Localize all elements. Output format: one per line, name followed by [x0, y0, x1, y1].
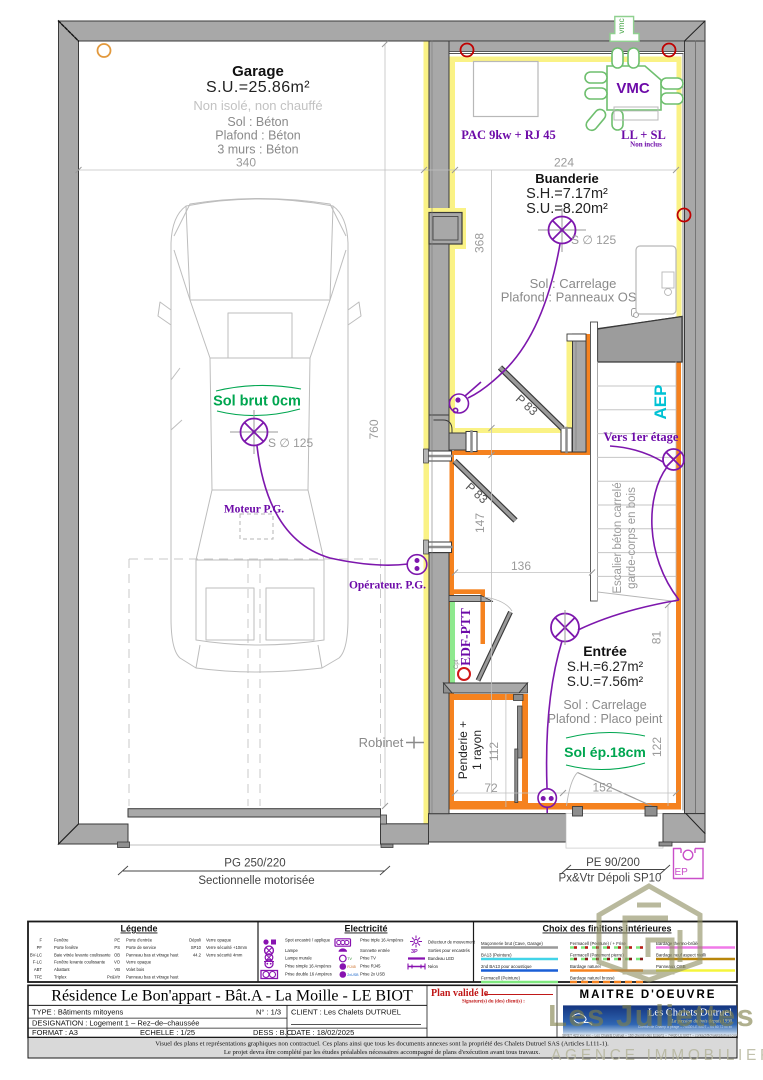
- svg-text:Non inclus: Non inclus: [630, 141, 662, 149]
- svg-text:Sol : Carrelage: Sol : Carrelage: [563, 698, 646, 712]
- svg-text:PE: PE: [114, 938, 120, 943]
- svg-text:FORMAT : A3: FORMAT : A3: [32, 1028, 78, 1037]
- svg-text:Electricité: Electricité: [344, 924, 387, 934]
- svg-text:PE 90/200: PE 90/200: [586, 857, 640, 869]
- svg-text:Entrée: Entrée: [583, 643, 627, 659]
- svg-text:Porte fenêtre: Porte fenêtre: [54, 945, 79, 950]
- svg-text:Panneau bas et vitrage haut: Panneau bas et vitrage haut: [126, 952, 179, 957]
- svg-text:Robinet: Robinet: [359, 735, 404, 750]
- svg-text:Signature(s) du (des) client(s: Signature(s) du (des) client(s) :: [462, 1000, 525, 1005]
- svg-text:SIRET 423 xxx xxx – Les Chalet: SIRET 423 xxx xxx – Les Chalets Dutruel …: [562, 1033, 738, 1037]
- svg-text:S.U.=8.20m²: S.U.=8.20m²: [526, 201, 608, 217]
- svg-text:AGENCE IMMOBILIERE: AGENCE IMMOBILIERE: [551, 1047, 763, 1064]
- svg-text:N° : 1/3: N° : 1/3: [256, 1008, 281, 1017]
- svg-text:BV-LC: BV-LC: [30, 952, 42, 957]
- svg-text:Sonnette entrée: Sonnette entrée: [360, 948, 390, 953]
- svg-text:Opérateur. P.G.: Opérateur. P.G.: [349, 580, 426, 592]
- svg-text:F: F: [39, 938, 42, 943]
- svg-text:Garage: Garage: [232, 63, 284, 80]
- svg-text:3 murs : Béton: 3 murs : Béton: [217, 143, 298, 157]
- svg-text:EDF-PTT: EDF-PTT: [458, 608, 473, 666]
- svg-text:Porte d'entrée: Porte d'entrée: [126, 938, 153, 943]
- svg-text:Buanderie: Buanderie: [535, 171, 599, 186]
- svg-text:RJ45: RJ45: [347, 965, 355, 969]
- svg-text:Bardage naturel brossé: Bardage naturel brossé: [570, 976, 615, 981]
- svg-text:Bandeau LED: Bandeau LED: [428, 956, 454, 961]
- svg-text:Panneau bas et vitrage haut: Panneau bas et vitrage haut: [126, 975, 179, 980]
- svg-text:Px&Vtr Dépoli SP10: Px&Vtr Dépoli SP10: [559, 873, 662, 885]
- svg-text:72: 72: [484, 781, 498, 795]
- svg-text:S ∅ 125: S ∅ 125: [571, 233, 616, 247]
- svg-text:Résidence Le Bon'appart - Bât.: Résidence Le Bon'appart - Bât.A - La Moi…: [51, 988, 413, 1005]
- svg-text:Triplex: Triplex: [54, 975, 67, 980]
- svg-text:Verre sécurité 4mm: Verre sécurité 4mm: [206, 952, 243, 957]
- svg-text:PF: PF: [37, 945, 43, 950]
- svg-text:VB: VB: [114, 967, 120, 972]
- svg-text:garde-corps en bois: garde-corps en bois: [626, 487, 638, 589]
- svg-text:vmc: vmc: [616, 17, 626, 33]
- svg-text:Volet bois: Volet bois: [126, 967, 144, 972]
- svg-text:PG 250/220: PG 250/220: [224, 858, 285, 870]
- svg-text:Moteur P.G.: Moteur P.G.: [224, 504, 284, 516]
- svg-text:Maçonnerie brut (Cave, Garage): Maçonnerie brut (Cave, Garage): [481, 941, 543, 946]
- svg-text:OB: OB: [114, 952, 120, 957]
- svg-text:Lampe: Lampe: [285, 948, 298, 953]
- svg-text:Sol ép.18cm: Sol ép.18cm: [564, 744, 646, 760]
- svg-text:Plafond : Béton: Plafond : Béton: [215, 129, 301, 143]
- svg-text:DATE : 18/02/2025: DATE : 18/02/2025: [291, 1028, 354, 1037]
- svg-text:Dépoli: Dépoli: [189, 938, 201, 943]
- svg-text:Vers 1er étage: Vers 1er étage: [604, 430, 679, 444]
- svg-text:ABT: ABT: [34, 967, 43, 972]
- svg-text:Sectionnelle motorisée: Sectionnelle motorisée: [198, 875, 314, 887]
- svg-text:EP: EP: [675, 867, 689, 878]
- svg-text:Les Juliettes: Les Juliettes: [548, 998, 755, 1033]
- svg-text:Choix des finitions intérieure: Choix des finitions intérieures: [542, 924, 671, 934]
- svg-text:340: 340: [236, 156, 256, 170]
- svg-text:Sol brut 0cm: Sol brut 0cm: [213, 394, 301, 410]
- svg-text:147: 147: [473, 513, 487, 533]
- svg-text:Fenêtre levante coulissante: Fenêtre levante coulissante: [54, 960, 106, 965]
- svg-text:152: 152: [592, 781, 612, 795]
- svg-text:AEP: AEP: [651, 385, 670, 420]
- svg-text:Visuel des plans et représenta: Visuel des plans et représentations grap…: [155, 1041, 609, 1048]
- svg-text:VMC: VMC: [616, 80, 650, 97]
- svg-text:Prise RJ45: Prise RJ45: [360, 964, 381, 969]
- svg-text:Prise double 16 Ampères: Prise double 16 Ampères: [285, 972, 332, 977]
- svg-text:Prise simple 16 Ampères: Prise simple 16 Ampères: [285, 964, 331, 969]
- svg-text:Prise TV: Prise TV: [360, 956, 376, 961]
- svg-text:368: 368: [473, 233, 487, 253]
- svg-text:Px&Vtr: Px&Vtr: [107, 975, 121, 980]
- svg-text:Verre opaque: Verre opaque: [206, 938, 232, 943]
- svg-text:TV: TV: [347, 957, 352, 961]
- svg-text:136: 136: [511, 559, 531, 573]
- svg-text:S.H.=6.27m²: S.H.=6.27m²: [567, 659, 644, 674]
- svg-text:Prise triple 16 Ampères: Prise triple 16 Ampères: [360, 938, 403, 943]
- svg-text:Non isolé, non chauffé: Non isolé, non chauffé: [193, 98, 322, 113]
- svg-text:Lampe murale: Lampe murale: [285, 956, 312, 961]
- svg-text:TFE: TFE: [34, 975, 42, 980]
- svg-text:Escalier béton carrelé: Escalier béton carrelé: [612, 482, 624, 593]
- svg-text:3P: 3P: [411, 949, 418, 955]
- svg-text:Plafond : Panneaux OSB: Plafond : Panneaux OSB: [501, 290, 646, 305]
- svg-text:CLIENT : Les Chalets DUTRUEL: CLIENT : Les Chalets DUTRUEL: [291, 1008, 401, 1017]
- svg-text:F-LC: F-LC: [33, 960, 42, 965]
- svg-text:Baie vitrée levante coulissant: Baie vitrée levante coulissante: [54, 952, 111, 957]
- svg-text:81: 81: [650, 631, 664, 645]
- svg-text:Verre sécurité +10mm: Verre sécurité +10mm: [206, 945, 248, 950]
- svg-text:SP10: SP10: [191, 945, 202, 950]
- svg-text:Abattant: Abattant: [54, 967, 70, 972]
- svg-text:VO: VO: [114, 960, 121, 965]
- svg-text:Néon: Néon: [428, 964, 439, 969]
- svg-text:PAC 9kw + RJ 45: PAC 9kw + RJ 45: [461, 128, 555, 142]
- svg-text:Sol : Béton: Sol : Béton: [227, 115, 288, 129]
- svg-text:224: 224: [554, 156, 574, 170]
- svg-text:Fermacell (Peinture): Fermacell (Peinture): [481, 976, 520, 981]
- svg-text:112: 112: [487, 742, 501, 761]
- svg-text:DESS : B.C.: DESS : B.C.: [253, 1028, 294, 1037]
- svg-text:122: 122: [650, 737, 664, 757]
- svg-text:2nd BA13 pour acoustique: 2nd BA13 pour acoustique: [481, 964, 532, 969]
- svg-text:S.H.=7.17m²: S.H.=7.17m²: [526, 186, 608, 202]
- svg-text:Plafond : Placo peint: Plafond : Placo peint: [548, 712, 663, 726]
- svg-text:DESIGNATION : Logement 1 –: DESIGNATION : Logement 1 – Rez–de–chauss…: [32, 1019, 199, 1028]
- svg-text:Le projet devra être complété: Le projet devra être complété par les ét…: [224, 1049, 541, 1056]
- svg-text:S ∅ 125: S ∅ 125: [268, 436, 313, 450]
- svg-text:S.U.=25.86m²: S.U.=25.86m²: [206, 79, 310, 96]
- svg-text:Spot encastré / applique: Spot encastré / applique: [285, 938, 331, 943]
- svg-text:2xUSB: 2xUSB: [347, 973, 359, 977]
- svg-text:ECHELLE : 1/25: ECHELLE : 1/25: [140, 1028, 195, 1037]
- svg-text:1 rayon: 1 rayon: [470, 730, 484, 770]
- svg-text:Bardage naturel: Bardage naturel: [570, 964, 601, 969]
- svg-text:Plan validé le: Plan validé le: [431, 988, 489, 999]
- svg-text:Verre opaque: Verre opaque: [126, 960, 152, 965]
- svg-text:PS: PS: [114, 945, 120, 950]
- svg-text:760: 760: [367, 419, 381, 439]
- svg-text:Sorties pour encastrés: Sorties pour encastrés: [428, 948, 470, 953]
- svg-text:Détecteur de mouvement: Détecteur de mouvement: [428, 940, 476, 945]
- svg-text:S.U.=7.56m²: S.U.=7.56m²: [567, 674, 644, 689]
- svg-text:BA13 (Peinture): BA13 (Peinture): [481, 953, 512, 958]
- svg-text:Fenêtre: Fenêtre: [54, 938, 69, 943]
- svg-text:44.2: 44.2: [193, 952, 202, 957]
- svg-text:Penderie +: Penderie +: [456, 721, 470, 779]
- svg-text:Légende: Légende: [120, 924, 157, 934]
- svg-text:TYPE : Bâtiments mitoyens: TYPE : Bâtiments mitoyens: [32, 1008, 124, 1017]
- svg-text:Porte de service: Porte de service: [126, 945, 157, 950]
- svg-text:Prise 2x USB: Prise 2x USB: [360, 972, 385, 977]
